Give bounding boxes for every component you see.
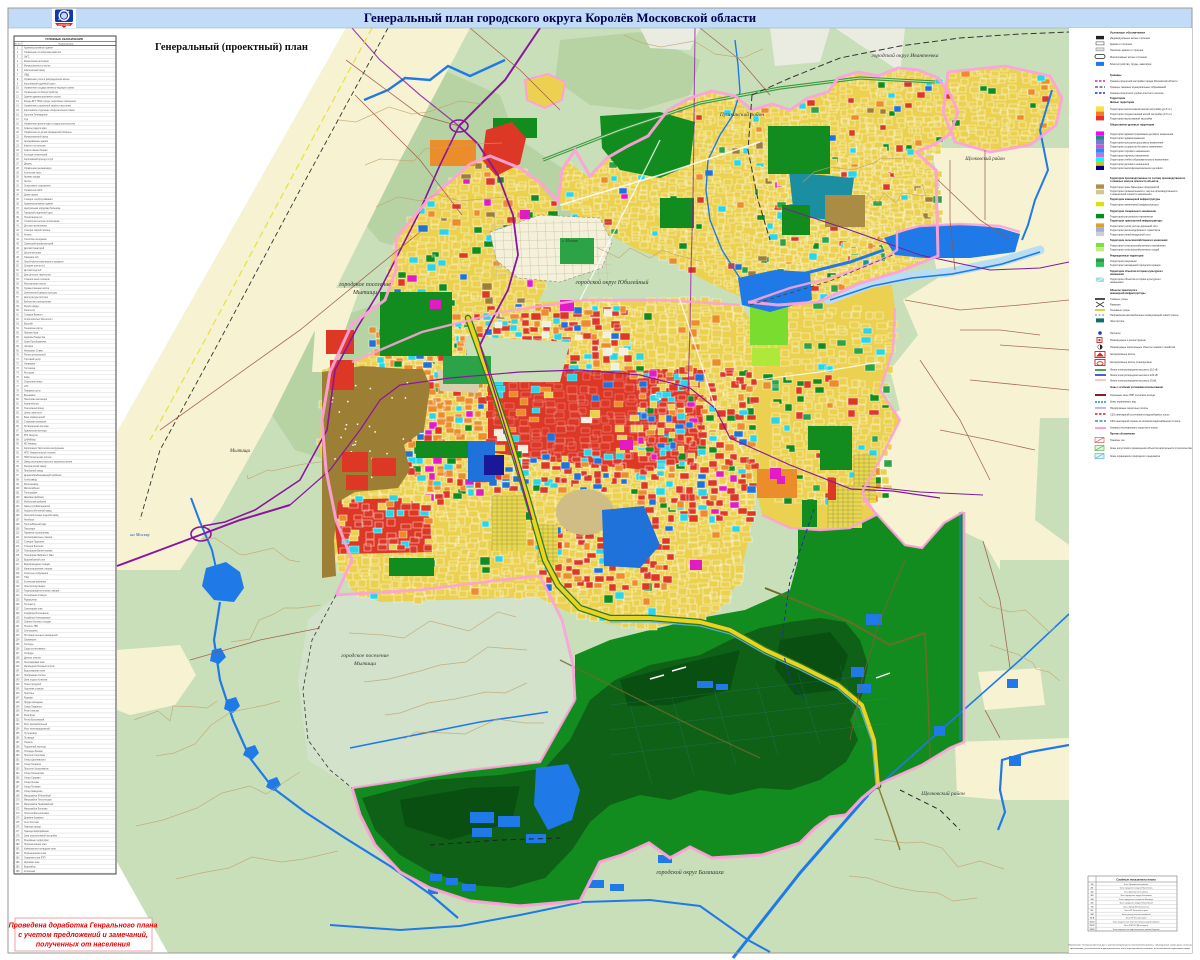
svg-text:Зоны допустимого размещения об: Зоны допустимого размещения объектов кап… (1110, 447, 1192, 450)
svg-text:Дом культуры Костино: Дом культуры Костино (24, 297, 49, 299)
svg-text:Территории узлов улично-дорожн: Территории узлов улично-дорожной сети (1110, 225, 1158, 228)
svg-text:Асфальтобетонный завод: Асфальтобетонный завод (24, 509, 52, 512)
svg-text:Территории здравоохранения: Территории здравоохранения (1110, 137, 1145, 140)
svg-text:Микрорайон Болшево: Микрорайон Болшево (24, 808, 48, 811)
svg-text:Мытищи: Мытищи (353, 661, 376, 667)
svg-text:Спорткомплекс Металлист: Спорткомплекс Металлист (24, 319, 54, 321)
svg-text:Резервные территории: Резервные территории (24, 840, 49, 842)
svg-text:Сады коллективные: Сады коллективные (24, 648, 46, 650)
svg-text:Школа-интернат: Школа-интернат (24, 252, 42, 254)
svg-text:Придорожные защитные полосы: Придорожные защитные полосы (1110, 407, 1148, 410)
svg-text:Железобетонных изделий завод: Железобетонных изделий завод (24, 514, 59, 517)
svg-text:Территории социально-бытового: Территории социально-бытового назначения (1110, 146, 1163, 149)
svg-text:Условные обозначения: Условные обозначения (1110, 31, 1145, 35)
svg-text:Подземный переход: Подземный переход (24, 745, 46, 748)
svg-text:Дом детского творчества: Дом детского творчества (24, 275, 51, 277)
svg-text:Швейная фабрика: Швейная фабрика (24, 496, 44, 499)
svg-text:Храм Преображения: Храм Преображения (24, 341, 47, 343)
svg-text:Электроподстанция: Электроподстанция (24, 586, 46, 588)
svg-text:Благоустройство, пруды, аквато: Благоустройство, пруды, акватории (1110, 63, 1152, 66)
svg-text:Здания и строения: Здания и строения (1110, 43, 1133, 46)
svg-text:Поликлиника №1: Поликлиника №1 (24, 216, 43, 219)
svg-text:Пляж городской: Пляж городской (24, 683, 42, 686)
svg-text:Улица Садовая: Улица Садовая (24, 777, 41, 779)
svg-text:Комитет по культуре: Комитет по культуре (24, 146, 47, 148)
svg-text:Арендованные здания: Арендованные здания (24, 140, 49, 143)
svg-text:Территории торгового назначени: Территории торгового назначения (1110, 150, 1150, 153)
svg-text:Планируемые капитальные объект: Планируемые капитальные объекты газового… (1110, 346, 1176, 349)
svg-text:Граница микрорайонов: Граница микрорайонов (24, 830, 50, 833)
svg-text:Дворец: Дворец (24, 163, 33, 165)
svg-text:Микрорайон Юбилейный: Микрорайон Юбилейный (24, 794, 52, 797)
svg-text:Центральная городская больница: Центральная городская больница (24, 208, 61, 210)
svg-text:Мытищи: Мытищи (352, 290, 377, 296)
svg-text:Планируемые к реконструкции: Планируемые к реконструкции (1110, 339, 1146, 342)
svg-text:Проведена доработка Генральног: Проведена доработка Генрального плана (9, 922, 158, 930)
svg-text:Территории научного назначения: Территории научного назначения (1110, 154, 1149, 157)
svg-text:Улица Заводская: Улица Заводская (24, 791, 43, 793)
svg-text:Полигон ТБО: Полигон ТБО (24, 626, 38, 628)
svg-text:Банк коммерческий: Банк коммерческий (24, 416, 46, 419)
svg-text:Основные улицы: Основные улицы (1110, 309, 1130, 312)
svg-text:на Москву: на Москву (130, 532, 150, 537)
svg-text:Аптеки: Аптеки (24, 234, 32, 237)
svg-text:Кинотеатр: Кинотеатр (24, 310, 36, 312)
svg-text:Деревня Куракино: Деревня Куракино (24, 818, 44, 820)
svg-text:Линии электропередачи высокого: Линии электропередачи высокого 220 кВ (1110, 374, 1158, 377)
svg-text:Мост железнодорожный: Мост железнодорожный (24, 728, 51, 731)
svg-text:Кладбище Невзоровское: Кладбище Невзоровское (24, 617, 51, 619)
svg-text:Зоны охраняемых вод: Зоны охраняемых вод (1110, 400, 1136, 403)
svg-text:Телефонная станция: Телефонная станция (24, 594, 47, 597)
svg-text:Завод экспериментального машин: Завод экспериментального машиностроения (24, 462, 73, 464)
svg-text:Территории специального назнач: Территории специального назначения (1110, 210, 1156, 213)
svg-text:Территории инженерной инфрастр: Территории инженерной инфраструктуры (1110, 203, 1159, 206)
svg-text:городское поселение: городское поселение (339, 281, 391, 288)
svg-text:Щелковский район: Щелковский район (964, 156, 1005, 162)
svg-text:Зона городского округа Ивантее: Зона городского округа Ивантеевка (1120, 888, 1154, 890)
svg-text:НПО Измерительной техники: НПО Измерительной техники (24, 452, 56, 455)
svg-text:Зона ЛЭП ВЛ (Мосэнерго): Зона ЛЭП ВЛ (Мосэнерго) (1124, 925, 1149, 927)
svg-text:Зона городского поселения Мыти: Зона городского поселения Мытищи (1119, 899, 1153, 901)
svg-text:Путепровод: Путепровод (24, 733, 37, 735)
svg-text:Шумовая зона: Шумовая зона (24, 862, 40, 864)
svg-text:Мемориал Славы: Мемориал Славы (24, 350, 43, 352)
svg-text:Стоматологическая поликлиника: Стоматологическая поликлиника (24, 221, 60, 223)
svg-text:Улица Гагарина: Улица Гагарина (24, 764, 41, 766)
svg-text:Санаторий-профилакторий: Санаторий-профилакторий (24, 242, 54, 245)
svg-text:Причалы: Причалы (1110, 332, 1121, 335)
svg-text:Зона города Москва (часть): Зона города Москва (часть) (1123, 906, 1149, 908)
svg-text:Рекреационные территории: Рекреационные территории (1110, 255, 1144, 258)
svg-text:Генеральный (проектный) план: Генеральный (проектный) план (155, 42, 308, 53)
svg-text:Нотариальная контора: Нотариальная контора (24, 426, 49, 428)
svg-text:Огороды: Огороды (24, 653, 34, 655)
svg-text:Территории рекреации: Территории рекреации (1110, 260, 1137, 263)
svg-text:Село Костино: Село Костино (24, 822, 40, 824)
svg-text:Городской родильный дом: Городской родильный дом (24, 211, 53, 214)
svg-text:Территории ритуального назначе: Территории ритуального назначения (1110, 215, 1153, 218)
svg-text:Деревообрабатывающий комбинат: Деревообрабатывающий комбинат (24, 474, 62, 477)
svg-text:Зона выделенных перспективных: Зона выделенных перспективных усадеб Кор… (1113, 922, 1160, 924)
svg-text:Заповедник Лосиный остров: Заповедник Лосиный остров (24, 665, 55, 668)
svg-text:Управление государственного на: Управление государственного надзора и св… (24, 88, 75, 90)
svg-text:Лыжная база: Лыжная база (24, 332, 39, 334)
svg-text:СЗЗ санитарной источников в во: СЗЗ санитарной источников в водозаборных… (1110, 413, 1170, 416)
svg-text:городское поселение: городское поселение (341, 652, 389, 659)
svg-text:Направления автомобильных комм: Направления автомобильных коммуникаций н… (1110, 314, 1179, 317)
svg-text:Административные здания: Административные здания (24, 47, 54, 50)
svg-text:Мытищи: Мытищи (229, 449, 250, 454)
svg-text:Финансовая инспекция: Финансовая инспекция (24, 60, 49, 63)
svg-text:Казначейство: Казначейство (24, 403, 39, 406)
svg-text:Территории малоэтажной застрой: Территории малоэтажной застройки (1110, 117, 1153, 120)
svg-text:Территории делового назначения: Территории делового назначения (1110, 163, 1150, 166)
svg-text:Индивидуальные жилые строения: Индивидуальные жилые строения (1110, 37, 1151, 40)
svg-text:Озеро Торфяное: Озеро Торфяное (24, 705, 43, 708)
svg-text:Проспект Королёва: Проспект Королёва (24, 755, 46, 757)
svg-text:требованиям, установленным в ф: требованиям, установленным в функциональ… (1070, 947, 1191, 950)
svg-text:г. Москва: г. Москва (562, 238, 578, 243)
svg-text:Газораспределительная станция: Газораспределительная станция (24, 591, 60, 593)
svg-text:Станция скорой помощи: Станция скорой помощи (24, 229, 51, 232)
svg-text:Улица Лесная: Улица Лесная (24, 782, 40, 784)
svg-text:РКК Энергия: РКК Энергия (24, 435, 38, 437)
svg-text:Прочие обозначения: Прочие обозначения (1110, 433, 1135, 436)
svg-text:ОВД: ОВД (24, 74, 29, 76)
svg-text:Река Клязьма: Река Клязьма (24, 711, 39, 713)
svg-text:Пруды каскадные: Пруды каскадные (24, 702, 44, 704)
svg-text:Примечание: Генеральный план д: Примечание: Генеральный план дан с учето… (1068, 944, 1192, 947)
svg-text:Музыкальная школа: Музыкальная школа (24, 284, 47, 286)
svg-text:КОРОЛЁВ: КОРОЛЁВ (58, 24, 70, 27)
svg-text:Зона НП Лосиный остров: Зона НП Лосиный остров (1124, 909, 1148, 912)
svg-text:Дома отдыха: Дома отдыха (24, 195, 39, 197)
svg-text:Территории многоэтажной жилой: Территории многоэтажной жилой застройки … (1110, 108, 1172, 111)
svg-text:Мясокомбинат: Мясокомбинат (24, 488, 41, 490)
svg-text:инженерной инфраструктуры: инженерной инфраструктуры (1110, 292, 1145, 295)
svg-text:Генеральный план городского ок: Генеральный план городского округа Корол… (364, 11, 757, 25)
svg-text:Теннисные корты: Теннисные корты (24, 328, 43, 330)
svg-text:Пушкинский район: Пушкинский район (719, 111, 765, 118)
svg-text:Территории культурно-досуговог: Территории культурно-досугового назначен… (1110, 141, 1164, 144)
svg-text:Военкомат: Военкомат (24, 395, 36, 397)
svg-text:13.12: 13.12 (1089, 929, 1095, 931)
svg-text:Механический завод: Механический завод (24, 465, 47, 468)
svg-text:Завод стройматериалов: Завод стройматериалов (24, 505, 51, 508)
svg-text:Охранная зона ЛЭП: Охранная зона ЛЭП (24, 858, 46, 860)
svg-text:Адвокатская контора: Адвокатская контора (24, 429, 47, 432)
svg-text:Водозаборный узел: Водозаборный узел (24, 558, 46, 561)
svg-text:Промышленная зона: Промышленная зона (24, 844, 47, 846)
svg-text:Общественно-деловые территории: Общественно-деловые территории (1110, 124, 1155, 127)
svg-text:полученных от населения: полученных от населения (36, 942, 130, 949)
svg-text:Управление ЖКХ: Управление ЖКХ (24, 190, 43, 192)
svg-text:Микрорайон Текстильщик: Микрорайон Текстильщик (24, 799, 53, 802)
svg-text:Гимназия №3: Гимназия №3 (24, 256, 39, 259)
svg-text:Зона Пушкинского района: Зона Пушкинского района (1124, 883, 1149, 886)
svg-text:Территории администрирования д: Территории администрирования делового на… (1110, 133, 1174, 136)
svg-text:Рынок центральный: Рынок центральный (24, 354, 46, 357)
svg-text:Жилые территории: Жилые территории (1110, 101, 1135, 104)
svg-text:КБ Химмаш: КБ Химмаш (24, 444, 37, 446)
svg-text:Платформа Валентиновка: Платформа Валентиновка (24, 550, 53, 553)
svg-text:Станция Подлипки: Станция Подлипки (24, 542, 45, 544)
svg-text:Королёв Телевидение: Королёв Телевидение (24, 114, 48, 116)
svg-text:Управление по благоустройству: Управление по благоустройству (24, 91, 59, 94)
svg-text:Бассейн: Бассейн (24, 323, 34, 326)
svg-text:Улица Пионерская: Улица Пионерская (24, 773, 45, 775)
svg-text:Санитарная зона: Санитарная зона (24, 608, 43, 610)
svg-text:Граница проектной застройки го: Граница проектной застройки города Моско… (1110, 80, 1178, 83)
svg-text:Дачные участки: Дачные участки (24, 657, 42, 659)
svg-text:Граница проектного учебно-опыт: Граница проектного учебно-опытного лесхо… (1110, 92, 1164, 95)
svg-text:Лицей научно-инженерного профи: Лицей научно-инженерного профиля (24, 260, 64, 263)
svg-text:Детская поликлиника: Детская поликлиника (24, 226, 48, 228)
svg-text:Автобаза: Автобаза (24, 518, 35, 521)
svg-text:Зона Щелковского района: Зона Щелковского района (1124, 890, 1149, 893)
svg-text:Территории зоны-барьерных пред: Территории зоны-барьерных предприятий (1110, 186, 1160, 189)
svg-text:Зона городского округа Балаших: Зона городского округа Балашиха (1120, 895, 1152, 897)
svg-text:Детский санаторий: Детский санаторий (24, 247, 45, 250)
svg-text:Эстакада: Эстакада (24, 737, 35, 739)
svg-text:Автозаправочные станции: Автозаправочные станции (24, 536, 53, 539)
svg-text:Территории сельскохозяйственно: Территории сельскохозяйственного назначе… (1110, 239, 1168, 242)
svg-text:Здания административные группы: Здания административные группы (24, 97, 61, 99)
svg-text:Свалка бытовых отходов: Свалка бытовых отходов (24, 622, 52, 624)
svg-text:Родники: Родники (24, 697, 34, 699)
svg-text:Ресторан: Ресторан (24, 373, 35, 375)
svg-text:Лесхоз: Лесхоз (24, 181, 31, 183)
svg-text:Территории инженерной инфрастр: Территории инженерной инфраструктуры (1110, 198, 1160, 201)
svg-text:Улица Полевая: Улица Полевая (24, 786, 41, 788)
svg-text:Зона городского округа Юбилейн: Зона городского округа Юбилейный (1119, 902, 1152, 905)
svg-text:Территории сельскохозяйственны: Территории сельскохозяйственных угодий (1110, 249, 1160, 252)
svg-text:с учетом предложений и замечан: с учетом предложений и замечаний, (18, 931, 148, 939)
svg-text:Развязки: Развязки (1110, 304, 1121, 307)
svg-text:Музей города: Музей города (24, 305, 39, 308)
svg-text:Граница города: Граница города (24, 826, 41, 828)
svg-text:Комплексный фонд: Комплексный фонд (24, 69, 46, 72)
svg-text:Канализационная станция: Канализационная станция (24, 568, 53, 570)
svg-text:Управление учета и распределен: Управление учета и распределения жилья (24, 79, 70, 81)
svg-text:Многоэтажные жилые строения: Многоэтажные жилые строения (1110, 56, 1148, 59)
svg-text:Королёвское отделение сберегат: Королёвское отделение сберегательного ба… (24, 110, 75, 112)
svg-text:ЦНИИМаш: ЦНИИМаш (24, 439, 36, 441)
svg-text:Торговый центр: Торговый центр (24, 358, 42, 361)
svg-text:Водозабор: Водозабор (24, 866, 36, 868)
svg-text:Станция Болшево: Станция Болшево (24, 546, 44, 548)
svg-text:Радиоцентр: Радиоцентр (24, 599, 38, 601)
svg-text:Художественная школа: Художественная школа (24, 288, 50, 290)
svg-text:Оранжерея: Оранжерея (24, 640, 37, 642)
svg-text:ЗаГС: ЗаГС (24, 57, 30, 59)
svg-text:Кафе: Кафе (24, 376, 31, 379)
svg-text:Нежилые здания и строения: Нежилые здания и строения (1110, 49, 1144, 52)
svg-text:Центральный дворец культуры: Центральный дворец культуры (24, 291, 58, 294)
svg-text:Площадь Ленина: Площадь Ленина (24, 751, 43, 753)
svg-text:Госпиталь ветеранов: Госпиталь ветеранов (24, 239, 47, 241)
svg-text:Зона выделенных перспективных: Зона выделенных перспективных земель Кор… (1113, 929, 1160, 931)
svg-text:Гаражные кооперативы: Гаражные кооперативы (24, 533, 49, 535)
svg-text:назначения: назначения (1110, 281, 1124, 284)
svg-text:Станции техобслуживания: Станции техобслуживания (24, 199, 53, 201)
svg-text:Щелковский район: Щелковский район (920, 790, 965, 797)
svg-text:Таксопарк: Таксопарк (24, 528, 36, 530)
svg-text:Территории среднеэтажной жилой: Территории среднеэтажной жилой застройки… (1110, 113, 1172, 116)
svg-text:Страховая компания: Страховая компания (24, 421, 47, 423)
svg-text:Управление механизации: Управление механизации (24, 168, 52, 170)
svg-text:Совхоз имени Ленина: Совхоз имени Ленина (24, 150, 48, 152)
svg-text:Корпорация Тактическое вооруже: Корпорация Тактическое вооружение (24, 448, 65, 450)
svg-text:Снегосвалка: Снегосвалка (24, 631, 38, 633)
svg-text:Лодочная станция: Лодочная станция (24, 688, 44, 690)
svg-text:Зона границ лесного хозяйства: Зона границ лесного хозяйства (1121, 913, 1151, 916)
svg-text:Зоны охраняемого природного ла: Зоны охраняемого природного ландшафта (1110, 455, 1161, 458)
svg-text:Детский сад №5: Детский сад №5 (24, 269, 42, 272)
svg-text:Библиотека центральная: Библиотека центральная (24, 301, 52, 303)
svg-text:Территории многофункциональног: Территории многофункционального делового (1110, 167, 1163, 170)
svg-text:Королёвский проезд и клуб: Королёвский проезд и клуб (24, 158, 54, 161)
svg-text:Территории транспортной инфрас: Территории транспортной инфраструктуры (1110, 220, 1162, 223)
svg-text:Лесопарковая зона: Лесопарковая зона (24, 662, 45, 664)
svg-text:Типография: Типография (24, 492, 38, 495)
svg-text:Станция юных техников: Станция юных техников (24, 279, 50, 281)
svg-text:Территории: Территории (1110, 96, 1126, 100)
svg-text:Муниципальный фонд: Муниципальный фонд (24, 136, 49, 139)
svg-text:Граница лесопаркового защитног: Граница лесопаркового защитного пояса (1110, 426, 1158, 429)
svg-text:и инженерной зонности назначен: и инженерной зонности назначения (1110, 193, 1152, 196)
svg-text:городской округ Балашиха: городской округ Балашиха (656, 869, 724, 876)
svg-text:НИИ Космических систем: НИИ Космических систем (24, 457, 52, 459)
svg-text:Административные здания: Административные здания (24, 202, 54, 205)
svg-text:Мост автомобильный: Мост автомобильный (24, 723, 48, 726)
svg-text:Мебельная фабрика: Мебельная фабрика (24, 501, 47, 504)
svg-text:Прибрежная полоса: Прибрежная полоса (24, 675, 46, 677)
svg-text:Территории сельскохозяйственно: Территории сельскохозяйственного назначе… (1110, 244, 1166, 247)
svg-text:Стадион Вымпел: Стадион Вымпел (24, 315, 43, 317)
svg-text:Сводные показатели плана: Сводные показатели плана (1116, 878, 1156, 882)
svg-text:Котельная часть: Котельная часть (24, 172, 42, 174)
svg-text:Гостиница: Гостиница (24, 368, 36, 370)
svg-text:Молокозавод: Молокозавод (24, 484, 39, 486)
svg-text:Линии электропередачи высокого: Линии электропередачи высокого 35 кВ (1110, 379, 1156, 382)
svg-text:Управление социальной защиты н: Управление социальной защиты населения (24, 105, 72, 108)
svg-text:Колледж технический: Колледж технический (24, 153, 48, 156)
svg-text:Посёлок Валентиновка: Посёлок Валентиновка (24, 813, 49, 815)
svg-text:Фонды ФГУ НИЦ города, подсобны: Фонды ФГУ НИЦ города, подсобные помещени… (24, 100, 77, 103)
svg-text:Котельная районная: Котельная районная (24, 581, 47, 584)
svg-text:Котельная: Котельная (24, 871, 36, 873)
svg-text:Суд: Суд (24, 119, 29, 121)
svg-text:Управление по делам гражданско: Управление по делам гражданской обороны (24, 131, 72, 134)
svg-text:Электротяга: Электротяга (1110, 320, 1125, 323)
svg-text:Улица Циолковского: Улица Циолковского (24, 760, 46, 762)
svg-text:Спортивные сооружения: Спортивные сооружения (24, 186, 51, 188)
svg-text:Часовня: Часовня (24, 346, 34, 348)
svg-text:№ п/п: № п/п (15, 42, 22, 45)
svg-text:Зона перспективной застройки: Зона перспективной застройки (24, 834, 58, 837)
svg-text:Управление по вопросам развити: Управление по вопросам развития (24, 52, 62, 54)
svg-text:ТЭЦ: ТЭЦ (24, 577, 29, 579)
svg-text:Церковь Рождества: Церковь Рождества (24, 337, 46, 339)
svg-text:Архивы города: Архивы города (24, 176, 41, 179)
svg-text:Границы зон: Границы зон (1110, 439, 1125, 442)
svg-text:Троллейбусный парк: Троллейбусный парк (24, 523, 47, 526)
svg-text:СЗЗ санитарной охраны источник: СЗЗ санитарной охраны источников водосна… (1110, 420, 1181, 423)
svg-text:Территории учебно-образователь: Территории учебно-образовательного назна… (1110, 159, 1169, 162)
svg-text:Рекреационная зона: Рекреационная зона (24, 853, 47, 855)
svg-text:Территории насаждений городско: Территории насаждений городского кранца (1110, 264, 1161, 267)
svg-text:Универмаг: Универмаг (24, 364, 36, 366)
svg-text:Налоговая инспекция: Налоговая инспекция (24, 399, 48, 401)
svg-text:Пенсионный фонд: Пенсионный фонд (24, 407, 44, 410)
svg-text:УСЛОВНЫЕ ОБОЗНАЧЕНИЯ: УСЛОВНЫЕ ОБОЗНАЧЕНИЯ (45, 37, 83, 41)
svg-text:Советы родного края: Советы родного края (24, 128, 47, 130)
svg-text:Королёвский судебный отдел: Королёвский судебный отдел (24, 82, 56, 85)
svg-text:Теплицы: Теплицы (24, 644, 34, 646)
svg-text:Отделение связи: Отделение связи (24, 381, 43, 383)
svg-text:Линии электропередачи высокого: Линии электропередачи высокого 110 кВ (1110, 368, 1158, 371)
svg-text:Границы смежных муниципальных: Границы смежных муниципальных образовани… (1110, 86, 1167, 89)
svg-text:городской округ Юбилейный: городской округ Юбилейный (576, 279, 649, 286)
svg-text:Микрорайон Первомайский: Микрорайон Первомайский (24, 803, 54, 806)
svg-text:Питомник зеленых насаждений: Питомник зеленых насаждений (24, 634, 58, 637)
svg-text:Территории линий воздушной сет: Территории линий воздушной сети (1110, 233, 1151, 236)
svg-text:Кладбище Болшевское: Кладбище Болшевское (24, 613, 50, 615)
svg-text:Пожарное депо: Пожарное депо (24, 390, 41, 392)
svg-text:Главные улицы: Главные улицы (1110, 298, 1128, 301)
svg-text:Охранные зоны ЛЭП полосами отв: Охранные зоны ЛЭП полосами отвода (1110, 394, 1155, 397)
svg-text:Пристань: Пристань (24, 693, 35, 695)
svg-text:назначения: назначения (1110, 273, 1124, 276)
svg-text:Зона ПР Лесной отдел: Зона ПР Лесной отдел (1125, 917, 1147, 920)
svg-text:Приборный завод: Приборный завод (24, 469, 44, 472)
svg-text:Автодорожные мосты планируемые: Автодорожные мосты планируемые (1110, 361, 1152, 364)
svg-text:и смежных классов опасности об: и смежных классов опасности объектов (1110, 180, 1159, 183)
svg-text:Водопроводная станция: Водопроводная станция (24, 564, 51, 566)
svg-text:Территории железнодорожного тр: Территории железнодорожного транспорта (1110, 229, 1161, 232)
svg-text:Проспект Космонавтов: Проспект Космонавтов (24, 769, 49, 771)
svg-text:Средняя школа №1: Средняя школа №1 (24, 265, 46, 268)
svg-text:Водоохранная зона: Водоохранная зона (24, 671, 46, 673)
svg-text:Ручей Болшевский: Ручей Болшевский (24, 719, 45, 722)
svg-text:Платформа Фабрика 1 Мая: Платформа Фабрика 1 Мая (24, 554, 54, 557)
svg-text:Автодорожные мосты: Автодорожные мосты (1110, 353, 1135, 356)
svg-text:Центр занятости: Центр занятости (24, 413, 43, 415)
svg-text:Очистные сооружения: Очистные сооружения (24, 573, 49, 575)
svg-text:городской округ Ивантеевка: городской округ Ивантеевка (872, 52, 939, 59)
svg-text:Река Яуза: Река Яуза (24, 715, 36, 717)
svg-text:АТС: АТС (24, 385, 29, 388)
svg-text:Зона отдыха Клязьма: Зона отдыха Клязьма (24, 680, 48, 682)
svg-text:Управление архитектуры и градо: Управление архитектуры и градостроительс… (24, 123, 76, 125)
svg-text:Телецентр: Телецентр (24, 604, 36, 606)
svg-text:Границы: Границы (1110, 73, 1122, 77)
svg-text:Коммунально-складская зона: Коммунально-складская зона (24, 849, 56, 851)
svg-text:Зоны с особыми условиями испол: Зоны с особыми условиями использования (1110, 386, 1163, 389)
svg-text:Тоннель: Тоннель (24, 742, 34, 744)
svg-text:Муниципальные участки: Муниципальные участки (24, 65, 51, 67)
svg-text:Хлебозавод: Хлебозавод (24, 479, 37, 481)
